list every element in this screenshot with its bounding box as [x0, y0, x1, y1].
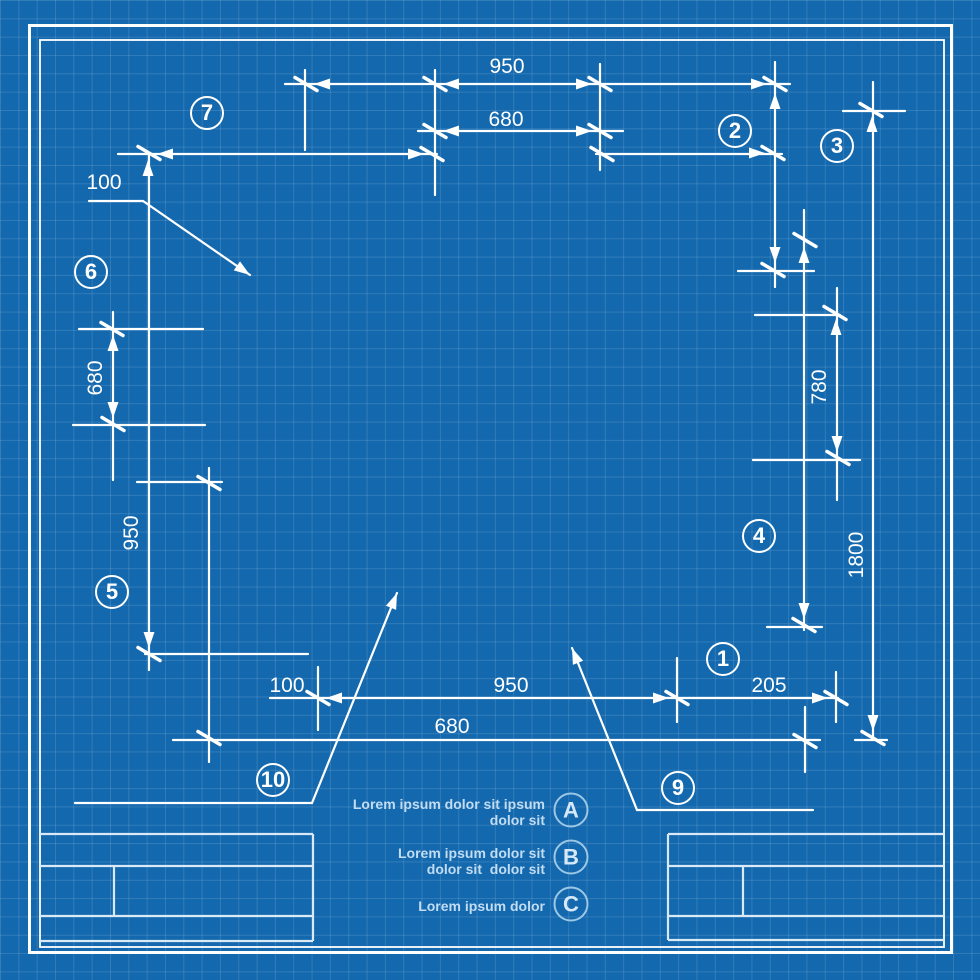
note-circle-A: A: [554, 793, 589, 828]
note-text-A: Lorem ipsum dolor sit ipsumdolor sit: [353, 796, 545, 828]
callout-7: 7: [190, 96, 224, 130]
dimension-label-950: 950: [120, 515, 144, 550]
dimension-label-680: 680: [434, 715, 469, 739]
dimension-label-780: 780: [808, 369, 832, 404]
note-line: Lorem ipsum dolor sit ipsum: [353, 796, 545, 812]
dimension-label-1800: 1800: [845, 532, 869, 579]
note-line: dolor sit: [353, 812, 545, 828]
callout-1: 1: [706, 642, 740, 676]
dimension-label-205: 205: [751, 674, 786, 698]
note-line: dolor sit dolor sit: [398, 861, 545, 877]
note-circle-C: C: [554, 887, 589, 922]
dimension-label-100: 100: [269, 674, 304, 698]
note-text-B: Lorem ipsum dolor sitdolor sit dolor sit: [398, 845, 545, 877]
dimension-label-680: 680: [488, 108, 523, 132]
callout-10: 10: [256, 763, 290, 797]
callout-9: 9: [661, 771, 695, 805]
note-circle-B: B: [554, 840, 589, 875]
note-line: Lorem ipsum dolor: [418, 898, 545, 914]
dimension-label-680: 680: [84, 360, 108, 395]
callout-3: 3: [820, 129, 854, 163]
note-text-C: Lorem ipsum dolor: [418, 898, 545, 914]
callout-6: 6: [74, 255, 108, 289]
label-layer: 9506801006809507801800100950205680123456…: [0, 0, 980, 980]
callout-2: 2: [718, 114, 752, 148]
dimension-label-100: 100: [86, 171, 121, 195]
dimension-label-950: 950: [493, 674, 528, 698]
blueprint-canvas: 9506801006809507801800100950205680123456…: [0, 0, 980, 980]
callout-5: 5: [95, 575, 129, 609]
callout-4: 4: [742, 519, 776, 553]
dimension-label-950: 950: [489, 55, 524, 79]
note-line: Lorem ipsum dolor sit: [398, 845, 545, 861]
